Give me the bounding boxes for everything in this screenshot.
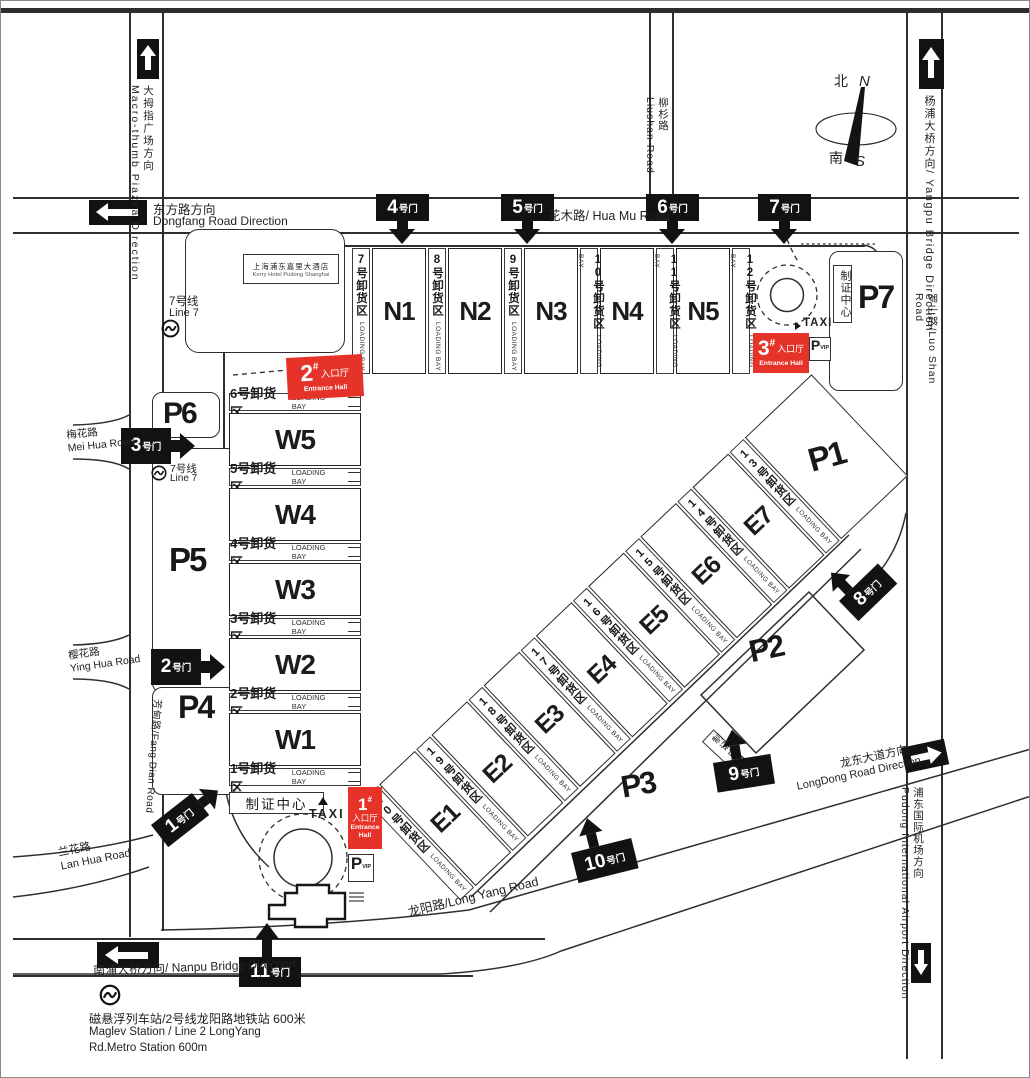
convention-building-icon — [269, 885, 345, 927]
hall-n4: N4 — [600, 248, 654, 374]
huamu-road-label: 花木路/ Hua Mu Road — [548, 205, 670, 224]
lanhua-road-label: 兰花路 Lan Hua Road — [57, 832, 132, 874]
gate-4-suffix: 号门 — [399, 201, 418, 215]
loading-bay-2: 2号卸货区LOADING BAY — [229, 693, 361, 711]
loading-bay-11-label: 11号卸货区LOADING BAY — [647, 254, 683, 373]
entrance-hall-3: 3#入口厅 Entrance Hall — [753, 333, 809, 373]
east-halls-band: 20号卸货区LOADING BAY E1 19号卸货区LOADING BAY E… — [364, 372, 910, 900]
gate-6-suffix: 号门 — [669, 201, 688, 215]
gate-4: 4号门 — [376, 194, 429, 221]
vip-parking-north-p: P — [811, 338, 820, 352]
entrance-hall-2-en: Entrance Hall — [304, 384, 348, 394]
vip-parking-south-vip: VIP — [362, 864, 371, 870]
entrance-hall-2-title: 2#入口厅 — [300, 360, 350, 386]
compass-south-cn: 南 — [829, 148, 843, 168]
gate-5-number: 5 — [512, 197, 523, 219]
hall-w2-label: W2 — [275, 649, 315, 681]
loading-bay-9-en: LOADING BAY — [510, 322, 517, 371]
hall-e2-label: E2 — [477, 749, 518, 790]
yangpu-arrow-box — [919, 39, 944, 89]
hall-n2: N2 — [448, 248, 502, 374]
up-arrow-icon — [922, 47, 940, 60]
hotel-block — [185, 229, 345, 353]
parking-p6-label: P6 — [163, 397, 196, 431]
loading-bay-1-cn: 1号卸货区 — [230, 758, 283, 796]
loading-bay-8-label: 8号卸货区LOADING BAY — [428, 254, 446, 371]
entrance-hall-3-hash: # — [770, 338, 776, 349]
loading-bay-1: 1号卸货区LOADING BAY — [229, 768, 361, 786]
hall-e3-label: E3 — [529, 699, 570, 740]
gate-7-suffix: 号门 — [781, 201, 800, 215]
vip-parking-south: PVIP — [348, 854, 374, 882]
gate-8-group: 8号门 — [839, 563, 897, 621]
gate-11-up-arrow-icon — [255, 923, 279, 939]
metro-logo-icon — [99, 984, 121, 1006]
entrance-hall-1: 1# 入口厅 Entrance Hall — [348, 787, 382, 849]
parking-p4-label: P4 — [178, 689, 213, 726]
hall-n3: N3 — [524, 248, 578, 374]
gate-4-down-arrow-icon — [389, 229, 415, 244]
entrance-hall-2-hash: # — [313, 362, 319, 373]
gate-3-right-arrow-icon — [180, 433, 195, 459]
loading-bay-12-cn: 12号卸货区 — [744, 254, 756, 330]
hall-w3-label: W3 — [275, 574, 315, 606]
hall-e1-label: E1 — [425, 798, 466, 839]
hotel-name-cn: 上海浦东嘉里大酒店 — [253, 261, 330, 272]
gate-7: 7号门 — [758, 194, 811, 221]
gate-5-down-arrow-icon — [514, 229, 540, 244]
loading-bay-11-cn: 11号卸货区 — [668, 254, 680, 330]
hall-n4-label: N4 — [611, 296, 642, 327]
gate-2-suffix: 号门 — [172, 660, 191, 674]
gate-4-number: 4 — [387, 197, 398, 219]
entrance-hall-1-en: Entrance Hall — [350, 824, 380, 840]
north-roundabout-dashed-loop — [757, 265, 817, 325]
sniec-venue-map: 7号卸货区LOADING BAY N1 8号卸货区LOADING BAY N2 … — [0, 0, 1030, 1078]
gate-7-down-arrow-icon — [771, 229, 797, 244]
south-roundabout-dashed-loop — [259, 814, 347, 902]
hall-n5: N5 — [676, 248, 730, 374]
taxi-arrow-icon — [318, 797, 328, 805]
hall-w1-label: W1 — [275, 724, 315, 756]
gate-10-suffix: 号门 — [605, 849, 627, 867]
loading-bay-5: 5号卸货区LOADING BAY — [229, 468, 361, 486]
loading-bay-8: 8号卸货区LOADING BAY — [428, 248, 446, 374]
south-road-north-edge — [13, 938, 545, 940]
hall-n1-label: N1 — [383, 296, 414, 327]
gate-2-arrow-stem — [201, 661, 210, 673]
right-arrow-icon — [927, 744, 943, 764]
line7-label-north-en: Line 7 — [169, 307, 199, 319]
gate-9-up-arrow-icon — [720, 728, 746, 748]
airport-direction-label: 浦东国际机场方向 Pudong International Airport Di… — [899, 787, 926, 1012]
entrance-hall-1-title: 1# — [358, 796, 372, 813]
yinghua-stub-south — [73, 679, 129, 689]
hall-e5-label: E5 — [634, 600, 675, 641]
south-roundabout — [274, 829, 332, 887]
entrance-hall-3-en: Entrance Hall — [759, 360, 802, 367]
entrance-hall-2-number: 2 — [300, 362, 314, 386]
left-arrow-stem — [118, 952, 148, 959]
hall-e4-label: E4 — [582, 649, 623, 690]
gate-11-arrow-stem — [262, 939, 272, 957]
loading-bay-5-en: LOADING BAY — [292, 468, 337, 486]
gate-1-group: 1号门 — [151, 793, 209, 847]
gate-5-suffix: 号门 — [524, 201, 543, 215]
taxi-pointer-icon — [795, 322, 801, 330]
parking-p3-label: P3 — [618, 764, 658, 805]
entrance-hall-1-cn: 入口厅 — [352, 814, 378, 823]
macro-thumb-direction-label: 大拇指广场方向 Macro-thumb Piazza Direction — [129, 85, 156, 285]
loading-bay-11: 11号卸货区LOADING BAY — [656, 248, 674, 374]
metro-logo-icon — [151, 465, 167, 481]
entrance-hall-1-number: 1 — [358, 796, 367, 813]
hall-w4-label: W4 — [275, 499, 315, 531]
compass-north-en: N — [859, 73, 870, 90]
parking-p7-label: P7 — [858, 279, 893, 316]
compass-north-cn: 北 — [834, 71, 848, 91]
entrance-hall-3-number: 3 — [758, 338, 770, 359]
loading-bay-10: 10号卸货区LOADING BAY — [580, 248, 598, 374]
gate-2-right-arrow-icon — [210, 654, 225, 680]
loading-bay-10-label: 10号卸货区LOADING BAY — [571, 254, 607, 373]
north-halls-band: 7号卸货区LOADING BAY N1 8号卸货区LOADING BAY N2 … — [352, 248, 750, 374]
badge-center-west-label: 制证中心 — [246, 793, 308, 813]
hall-e7-label: E7 — [738, 501, 779, 542]
entrance-hall-2: 2#入口厅 Entrance Hall — [286, 354, 364, 400]
parking-p1-label: P1 — [804, 434, 849, 480]
gate-2-number: 2 — [161, 656, 172, 678]
loading-bay-9: 9号卸货区LOADING BAY — [504, 248, 522, 374]
maglev-station-en2: Rd.Metro Station 600m — [89, 1042, 207, 1054]
loading-bay-3: 3号卸货区LOADING BAY — [229, 618, 361, 636]
hotel-label-box: 上海浦东嘉里大酒店 Kerry Hotel Pudong Shanghai — [243, 254, 339, 284]
dongfang-direction-en: Dongfang Road Direction — [153, 214, 288, 228]
loading-bay-2-en: LOADING BAY — [292, 693, 337, 711]
maglev-station-cn: 磁悬浮列车站/2号线龙阳路地铁站 600米 — [89, 1009, 306, 1027]
loading-bay-8-en: LOADING BAY — [434, 322, 441, 371]
hall-n2-label: N2 — [459, 296, 490, 327]
entrance-hall-3-cn: 入口厅 — [777, 345, 804, 355]
vip-parking-south-p: P — [351, 855, 362, 872]
gate-9-suffix: 号门 — [739, 764, 760, 781]
parking-p2-label: P2 — [746, 628, 787, 670]
entrance-hall-3-title: 3#入口厅 — [758, 338, 804, 359]
water-hash-icon — [349, 893, 364, 901]
loading-bay-9-cn: 9号卸货区 — [507, 254, 519, 317]
gate-10-group: 10号门 — [571, 838, 639, 883]
taxi-label-north: TAXI — [803, 317, 832, 329]
hall-n5-label: N5 — [687, 296, 718, 327]
loading-bay-4: 4号卸货区LOADING BAY — [229, 543, 361, 561]
up-arrow-stem — [145, 56, 151, 70]
liushan-road-label: 柳杉路 Liushan Road — [644, 97, 671, 187]
entrance-hall-1-hash: # — [368, 796, 372, 805]
gate-6-down-arrow-icon — [659, 229, 685, 244]
entrance-hall-2-cn: 入口厅 — [321, 369, 350, 381]
gate-10: 10号门 — [571, 838, 639, 883]
loading-bay-10-cn: 10号卸货区 — [592, 254, 604, 330]
badge-center-north: 制证中心 — [833, 265, 852, 323]
hall-e6-label: E6 — [686, 550, 727, 591]
gate-3-arrow-stem — [171, 440, 180, 452]
metro-logo-icon — [161, 319, 180, 338]
loading-bay-1-en: LOADING BAY — [292, 768, 337, 786]
gate-3-suffix: 号门 — [142, 439, 161, 453]
macro-thumb-arrow-box — [137, 39, 159, 79]
loading-bay-8-cn: 8号卸货区 — [431, 254, 443, 317]
longdong-direction-label: 龙东大道方向 LongDong Road Direction — [792, 741, 911, 793]
loading-bay-12: 12号卸货区LOADING BAY — [732, 248, 750, 374]
gate-7-arrow-stem — [779, 221, 790, 229]
up-arrow-stem — [928, 60, 934, 78]
hall-w5-label: W5 — [275, 424, 315, 456]
hall-n3-label: N3 — [535, 296, 566, 327]
badge-center-north-label: 制证中心 — [837, 270, 853, 318]
frame-top-bar — [1, 8, 1030, 13]
gate-7-number: 7 — [769, 197, 780, 219]
gate-2: 2号门 — [151, 649, 201, 685]
vip-parking-north: PVIP — [809, 337, 831, 361]
line7-label-west-en: Line 7 — [170, 473, 197, 484]
compass-south-en: S — [855, 153, 865, 170]
luoshan-road-label: 罗山路/Luo Shan Road — [913, 293, 940, 403]
loading-bay-9-label: 9号卸货区LOADING BAY — [504, 254, 522, 371]
gate-4-arrow-stem — [397, 221, 408, 229]
hotel-name-en: Kerry Hotel Pudong Shanghai — [253, 272, 330, 278]
loading-bay-4-en: LOADING BAY — [292, 543, 337, 561]
hall-n1: N1 — [372, 248, 426, 374]
loading-bay-3-en: LOADING BAY — [292, 618, 337, 636]
gate-5-arrow-stem — [522, 221, 533, 229]
liushan-road-east-edge — [672, 13, 674, 197]
west-halls-band: 6号卸货区LOADING BAY W5 5号卸货区LOADING BAY W4 … — [229, 393, 361, 786]
north-roundabout — [771, 279, 804, 312]
parking-p5-label: P5 — [169, 541, 205, 579]
loading-bay-7-cn: 7号卸货区 — [355, 254, 367, 317]
gate-5: 5号门 — [501, 194, 554, 221]
vip-parking-north-vip: VIP — [820, 345, 829, 351]
maglev-station-en1: Maglev Station / Line 2 LongYang — [89, 1026, 261, 1038]
up-arrow-icon — [140, 45, 156, 56]
east-road-east-edge — [941, 13, 943, 1059]
taxi-label-south: TAXI — [309, 807, 345, 821]
left-arrow-icon — [96, 203, 108, 221]
